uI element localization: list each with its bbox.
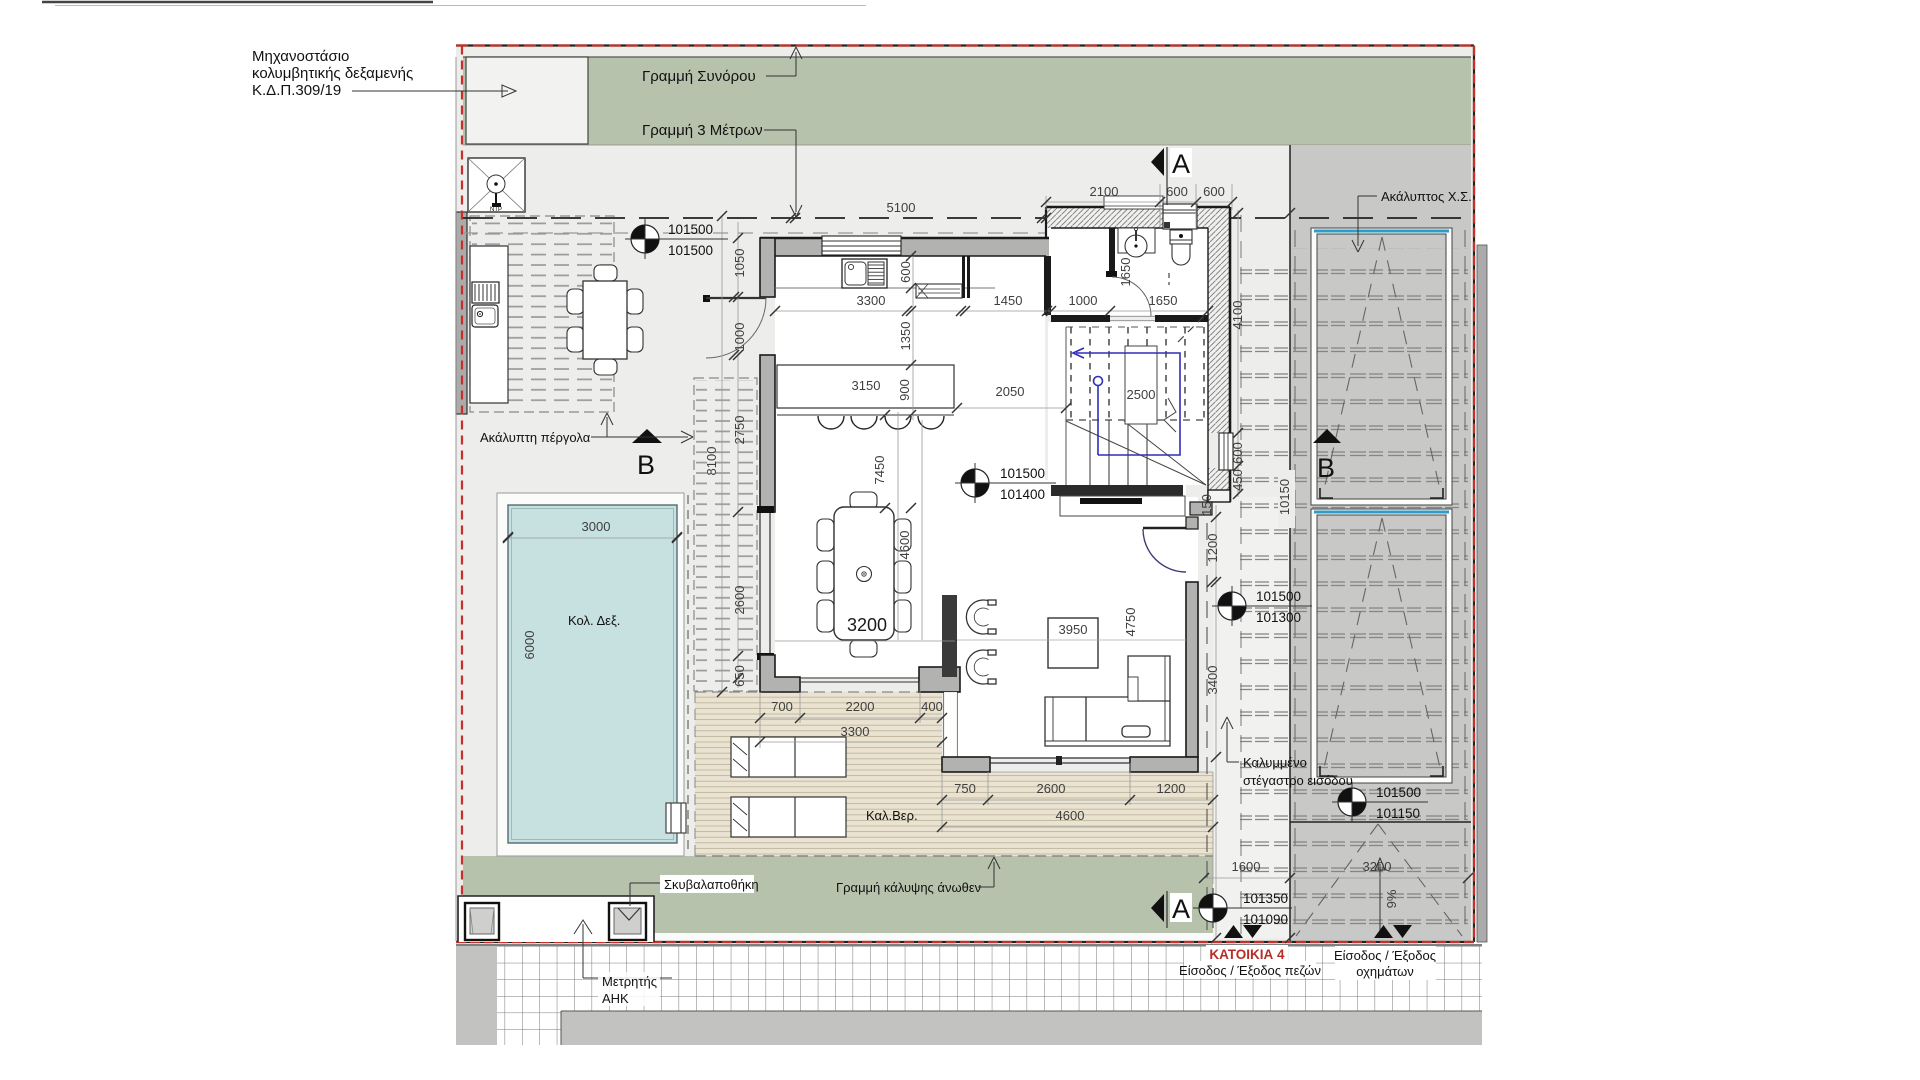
svg-text:Κολ. Δεξ.: Κολ. Δεξ. <box>568 613 620 628</box>
svg-text:ΝΤΡ: ΝΤΡ <box>490 207 502 213</box>
svg-text:B: B <box>637 450 655 480</box>
svg-text:1650: 1650 <box>1149 293 1178 308</box>
svg-text:Καλυμμένο: Καλυμμένο <box>1243 755 1307 770</box>
svg-text:2600: 2600 <box>732 586 747 615</box>
svg-text:Γραμμή κάλυψης άνωθεν: Γραμμή κάλυψης άνωθεν <box>836 880 981 895</box>
svg-text:4100: 4100 <box>1230 301 1245 330</box>
svg-text:101400: 101400 <box>1000 487 1045 502</box>
svg-text:3400: 3400 <box>1205 666 1220 695</box>
svg-text:Ακάλυπτη πέργολα: Ακάλυπτη πέργολα <box>480 430 591 445</box>
svg-text:101350: 101350 <box>1243 891 1288 906</box>
svg-text:Κ.Δ.Π.309/19: Κ.Δ.Π.309/19 <box>252 82 341 99</box>
svg-text:3150: 3150 <box>852 378 881 393</box>
svg-text:4600: 4600 <box>1056 808 1085 823</box>
svg-text:2100: 2100 <box>1090 184 1119 199</box>
svg-text:3000: 3000 <box>582 519 611 534</box>
svg-text:101300: 101300 <box>1256 610 1301 625</box>
svg-text:6000: 6000 <box>522 631 537 660</box>
svg-text:1650: 1650 <box>1118 258 1133 287</box>
svg-text:7450: 7450 <box>872 456 887 485</box>
svg-text:3300: 3300 <box>841 724 870 739</box>
svg-text:8100: 8100 <box>704 447 719 476</box>
svg-text:3950: 3950 <box>1059 622 1088 637</box>
svg-text:κολυμβητικής δεξαμενής: κολυμβητικής δεξαμενής <box>252 65 413 82</box>
svg-text:101500: 101500 <box>1000 466 1045 481</box>
svg-text:1050: 1050 <box>732 249 747 278</box>
svg-text:3300: 3300 <box>857 293 886 308</box>
svg-text:101500: 101500 <box>668 243 713 258</box>
svg-text:Μετρητής: Μετρητής <box>602 974 657 989</box>
svg-text:A: A <box>1172 894 1190 924</box>
svg-text:600: 600 <box>1230 442 1245 464</box>
svg-text:Ακάλυπτος Χ.Σ.: Ακάλυπτος Χ.Σ. <box>1381 189 1472 204</box>
svg-text:9%: 9% <box>1384 889 1399 908</box>
svg-text:4750: 4750 <box>1123 608 1138 637</box>
svg-text:Γραμμή 3 Μέτρων: Γραμμή 3 Μέτρων <box>642 122 763 139</box>
svg-text:ΑΗΚ: ΑΗΚ <box>602 991 629 1006</box>
svg-text:1600: 1600 <box>1232 859 1261 874</box>
svg-text:1450: 1450 <box>994 293 1023 308</box>
svg-text:400: 400 <box>921 699 943 714</box>
svg-text:1000: 1000 <box>732 323 747 352</box>
svg-text:Είσοδος / Έξοδος: Είσοδος / Έξοδος <box>1334 948 1436 963</box>
svg-text:750: 750 <box>954 781 976 796</box>
svg-text:Γραμμή Συνόρου: Γραμμή Συνόρου <box>642 68 756 85</box>
svg-text:700: 700 <box>771 699 793 714</box>
svg-text:5100: 5100 <box>887 200 916 215</box>
svg-text:2050: 2050 <box>996 384 1025 399</box>
svg-text:οχημάτων: οχημάτων <box>1356 964 1414 979</box>
svg-text:900: 900 <box>897 379 912 401</box>
svg-text:150: 150 <box>1199 494 1214 516</box>
svg-text:600: 600 <box>898 261 913 283</box>
svg-text:450: 450 <box>1230 469 1245 491</box>
svg-text:Σκυβαλαποθήκη: Σκυβαλαποθήκη <box>664 877 759 892</box>
svg-text:2600: 2600 <box>1037 781 1066 796</box>
svg-text:101500: 101500 <box>1376 785 1421 800</box>
svg-text:2200: 2200 <box>846 699 875 714</box>
svg-text:B: B <box>1317 453 1335 483</box>
svg-text:1200: 1200 <box>1205 534 1220 563</box>
svg-text:Είσοδος / Έξοδος πεζών: Είσοδος / Έξοδος πεζών <box>1179 963 1321 978</box>
svg-text:ΚΑΤΟΙΚΙΑ 4: ΚΑΤΟΙΚΙΑ 4 <box>1209 947 1285 962</box>
svg-text:3200: 3200 <box>1363 859 1392 874</box>
svg-text:101500: 101500 <box>1256 589 1301 604</box>
svg-text:600: 600 <box>1166 184 1188 199</box>
svg-text:1200: 1200 <box>1157 781 1186 796</box>
svg-text:101500: 101500 <box>668 222 713 237</box>
svg-text:Μηχανοστάσιο: Μηχανοστάσιο <box>252 48 349 65</box>
svg-text:600: 600 <box>1203 184 1225 199</box>
svg-text:101150: 101150 <box>1376 806 1420 821</box>
svg-text:650: 650 <box>732 665 747 687</box>
svg-text:4600: 4600 <box>897 531 912 560</box>
svg-text:2500: 2500 <box>1127 387 1156 402</box>
svg-text:10150: 10150 <box>1277 479 1292 515</box>
svg-text:1000: 1000 <box>1069 293 1098 308</box>
svg-text:1350: 1350 <box>898 322 913 351</box>
svg-text:στέγαστρο εισόδου: στέγαστρο εισόδου <box>1243 773 1353 788</box>
svg-text:101090: 101090 <box>1243 912 1288 927</box>
svg-text:3200: 3200 <box>847 615 887 635</box>
svg-text:Καλ.Βερ.: Καλ.Βερ. <box>866 808 918 823</box>
svg-text:A: A <box>1172 149 1190 179</box>
svg-text:2750: 2750 <box>732 416 747 445</box>
